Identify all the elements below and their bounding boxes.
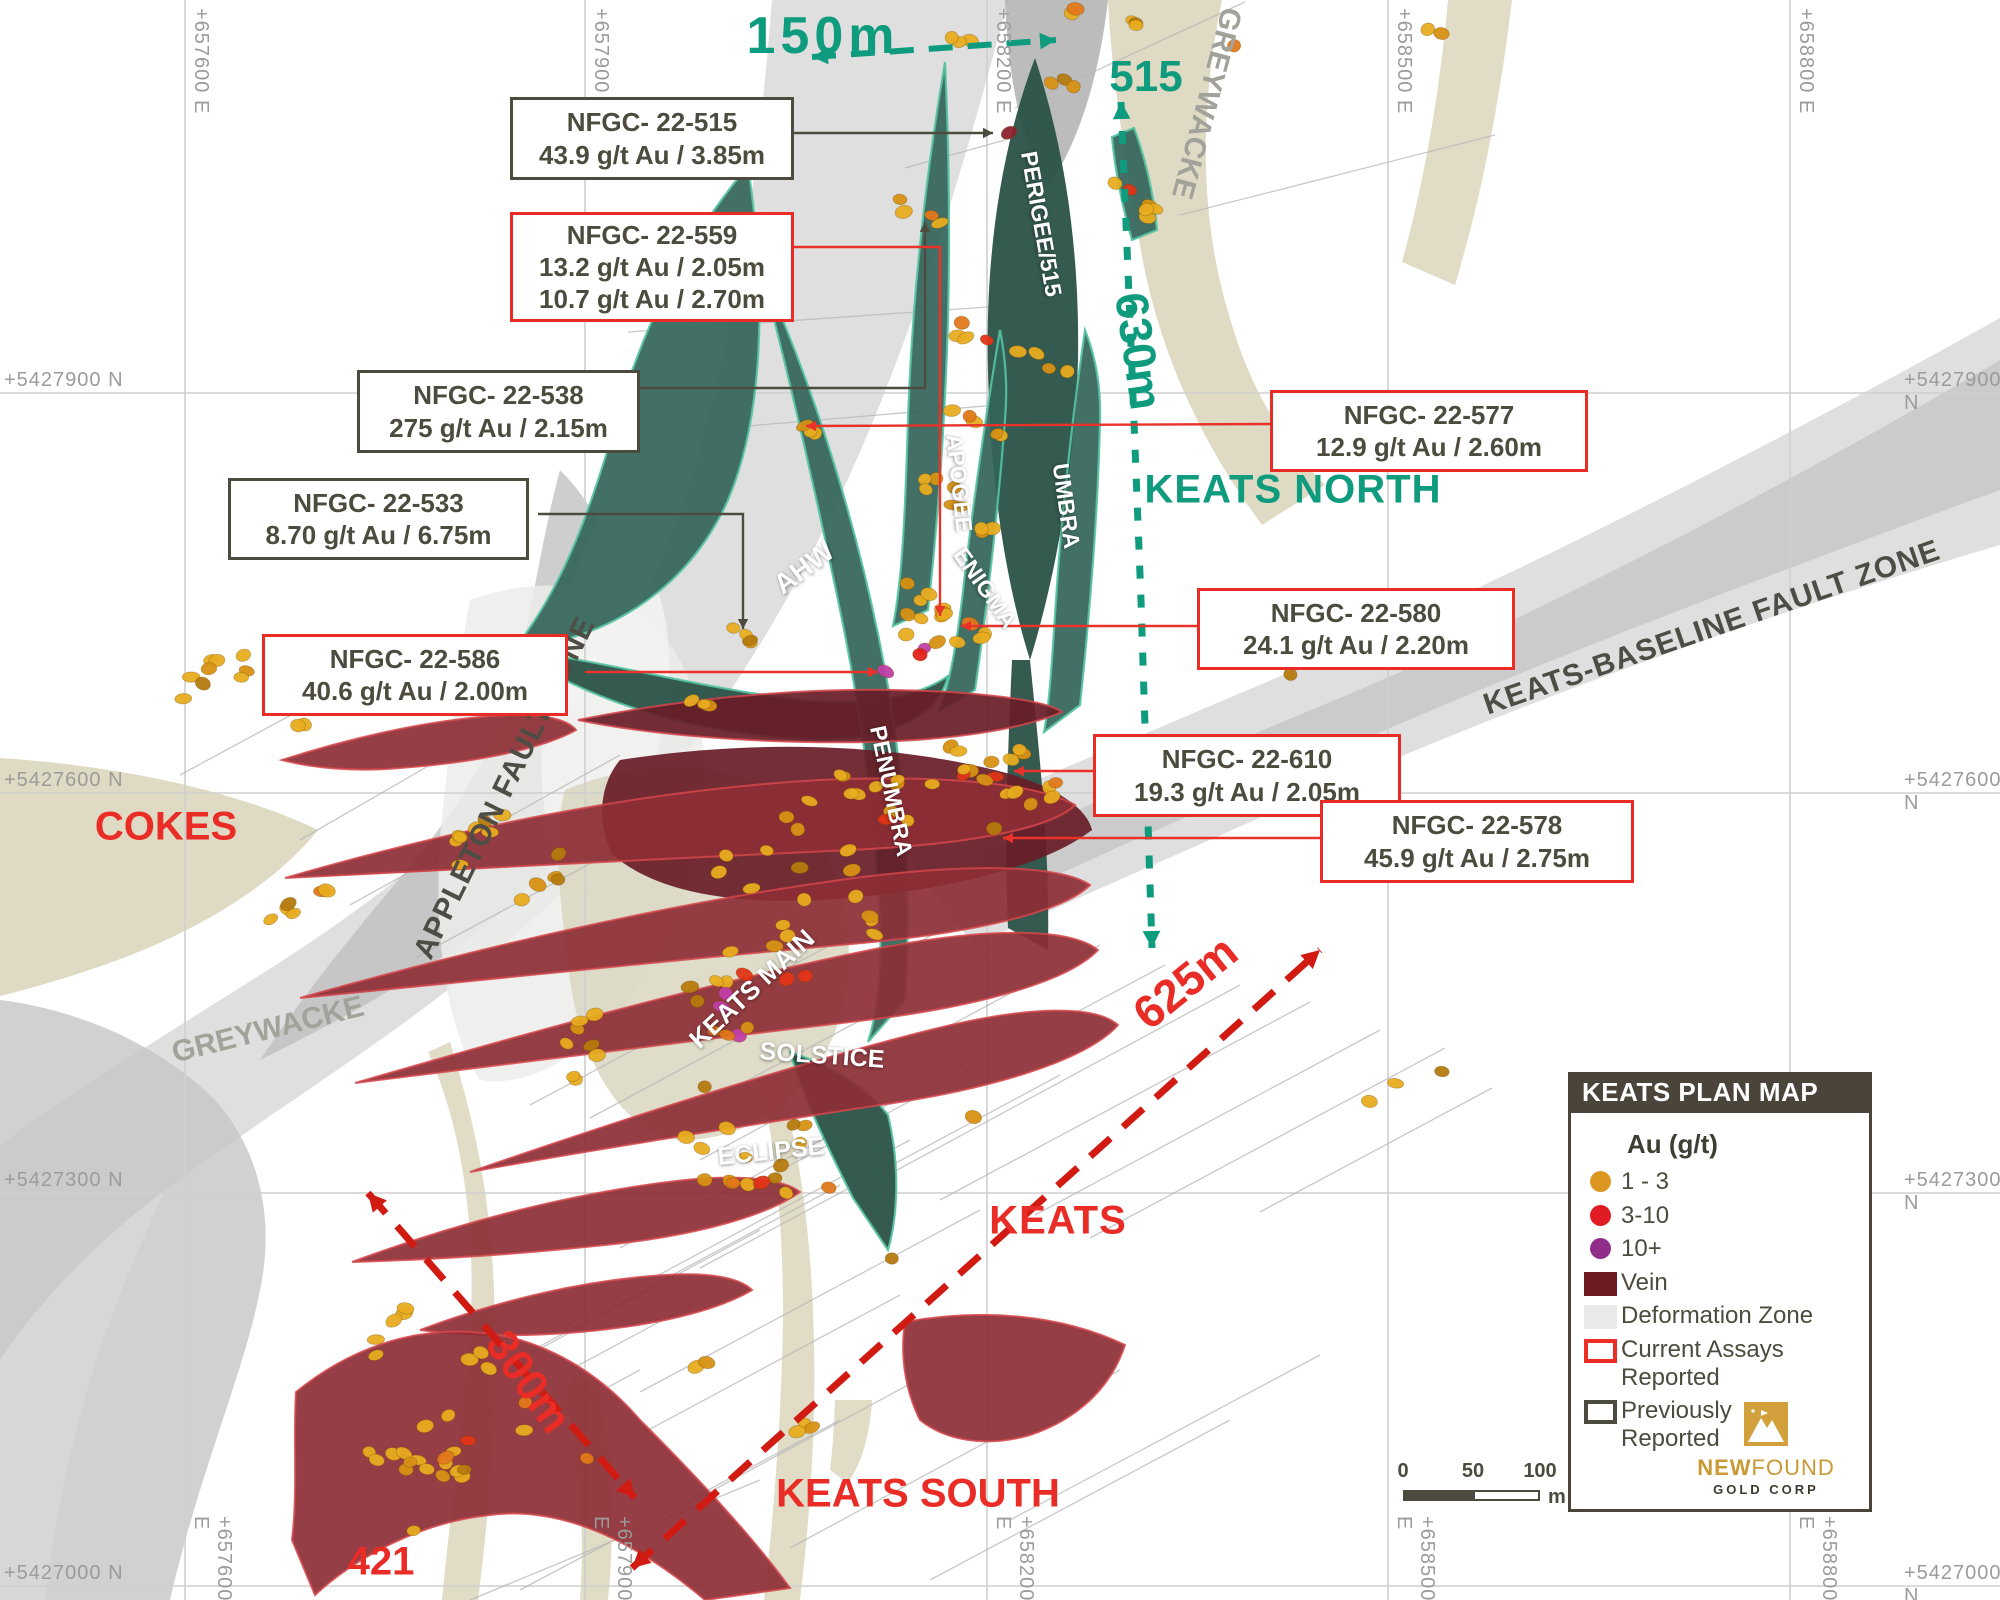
legend-swatch-dot <box>1590 1205 1611 1226</box>
assay-callout-nfgc-22-578: NFGC- 22-57845.9 g/t Au / 2.75m <box>1320 800 1634 883</box>
mountain-logo-icon <box>1744 1402 1788 1446</box>
callout-line: 13.2 g/t Au / 2.05m <box>513 251 791 283</box>
grid-label-north: +5427900 N <box>1904 369 2000 415</box>
legend-item: Deformation Zone <box>1579 1302 1869 1330</box>
legend-swatch <box>1579 1336 1621 1363</box>
callout-line: NFGC- 22-610 <box>1096 743 1398 775</box>
callout-line: 40.6 g/t Au / 2.00m <box>265 675 565 707</box>
legend: KEATS PLAN MAP Au (g/t) 1 - 33-1010+Vein… <box>1568 1072 1872 1512</box>
grid-label-east: +658800 E <box>1794 8 1817 114</box>
assay-callout-nfgc-22-580: NFGC- 22-58024.1 g/t Au / 2.20m <box>1197 588 1515 670</box>
legend-swatch <box>1579 1168 1621 1192</box>
callout-line: NFGC- 22-538 <box>360 379 637 411</box>
grid-label-east: +657600 E <box>189 8 212 114</box>
legend-item-label: 10+ <box>1621 1235 1662 1263</box>
grid-label-east: +658200 E <box>991 1516 1037 1600</box>
callout-line: 43.9 g/t Au / 3.85m <box>513 139 791 171</box>
callout-line: NFGC- 22-580 <box>1200 597 1512 629</box>
grid-label-east: +658200 E <box>991 8 1014 114</box>
grid-label-north: +5427300 N <box>4 1169 124 1192</box>
callout-line: NFGC- 22-578 <box>1323 809 1631 841</box>
legend-swatch <box>1579 1397 1621 1424</box>
legend-item-label: 3-10 <box>1621 1202 1669 1230</box>
legend-title: KEATS PLAN MAP <box>1568 1072 1872 1113</box>
grid-label-north: +5427900 N <box>4 369 124 392</box>
callout-line: NFGC- 22-586 <box>265 643 565 675</box>
grid-label-north: +5427000 N <box>4 1562 124 1585</box>
callout-line: 45.9 g/t Au / 2.75m <box>1323 842 1631 874</box>
legend-swatch <box>1579 1235 1621 1259</box>
callout-line: 24.1 g/t Au / 2.20m <box>1200 629 1512 661</box>
legend-au-header: Au (g/t) <box>1627 1129 1869 1160</box>
assay-callout-nfgc-22-515: NFGC- 22-51543.9 g/t Au / 3.85m <box>510 97 794 180</box>
keats-plan-map: NFGC- 22-51543.9 g/t Au / 3.85mNFGC- 22-… <box>0 0 2000 1600</box>
callout-line: NFGC- 22-533 <box>231 487 526 519</box>
scale-bar-filled-segment <box>1403 1490 1473 1501</box>
legend-item: Vein <box>1579 1269 1869 1297</box>
legend-body: Au (g/t) 1 - 33-1010+VeinDeformation Zon… <box>1568 1113 1872 1512</box>
legend-item: 10+ <box>1579 1235 1869 1263</box>
callout-line: NFGC- 22-577 <box>1273 399 1585 431</box>
scale-tick: 50 <box>1462 1460 1484 1483</box>
grid-label-north: +5427600 N <box>1904 769 2000 815</box>
legend-swatch-dot <box>1590 1171 1611 1192</box>
callout-line: NFGC- 22-559 <box>513 219 791 251</box>
legend-item: 3-10 <box>1579 1202 1869 1230</box>
scale-bar-open-segment <box>1473 1490 1540 1501</box>
legend-item: 1 - 3 <box>1579 1168 1869 1196</box>
legend-item-label: Current AssaysReported <box>1621 1336 1784 1391</box>
grid-label-north: +5427300 N <box>1904 1169 2000 1215</box>
grid-label-east: +658800 E <box>1794 1516 1840 1600</box>
grid-label-east: +657600 E <box>189 1516 235 1600</box>
logo-wordmark: NEWFOUND <box>1681 1455 1851 1481</box>
callout-line: 275 g/t Au / 2.15m <box>360 412 637 444</box>
legend-item-label: 1 - 3 <box>1621 1168 1669 1196</box>
grid-label-north: +5427600 N <box>4 769 124 792</box>
scale-bar: m 050100 <box>1396 1458 1576 1508</box>
assay-callout-nfgc-22-586: NFGC- 22-58640.6 g/t Au / 2.00m <box>262 634 568 716</box>
legend-swatch-rect <box>1584 1272 1617 1296</box>
legend-swatch-outline <box>1584 1400 1617 1424</box>
legend-swatch-dot <box>1590 1238 1611 1259</box>
callout-line: 8.70 g/t Au / 6.75m <box>231 519 526 551</box>
grid-label-east: +658500 E <box>1392 8 1415 114</box>
legend-swatch-outline <box>1584 1339 1617 1363</box>
grid-label-east: +658500 E <box>1392 1516 1438 1600</box>
newfound-gold-logo: NEWFOUND GOLD CORP <box>1681 1402 1851 1497</box>
legend-item-label: Vein <box>1621 1269 1668 1297</box>
legend-swatch <box>1579 1269 1621 1296</box>
scale-tick: 100 <box>1523 1460 1556 1483</box>
grid-label-east: +657900 E <box>589 1516 635 1600</box>
scale-bar-unit: m <box>1548 1486 1566 1509</box>
scale-bar-graphic <box>1403 1490 1540 1501</box>
assay-callout-nfgc-22-559: NFGC- 22-55913.2 g/t Au / 2.05m10.7 g/t … <box>510 212 794 322</box>
assay-callout-nfgc-22-533: NFGC- 22-5338.70 g/t Au / 6.75m <box>228 478 529 560</box>
assay-callout-nfgc-22-577: NFGC- 22-57712.9 g/t Au / 2.60m <box>1270 390 1588 472</box>
callout-line: 10.7 g/t Au / 2.70m <box>513 283 791 315</box>
legend-swatch-rect <box>1584 1305 1617 1329</box>
legend-item: Current AssaysReported <box>1579 1336 1869 1391</box>
scale-tick: 0 <box>1397 1460 1408 1483</box>
callout-line: 12.9 g/t Au / 2.60m <box>1273 431 1585 463</box>
legend-item-label: Deformation Zone <box>1621 1302 1813 1330</box>
callout-line: NFGC- 22-515 <box>513 106 791 138</box>
logo-subtitle: GOLD CORP <box>1681 1482 1851 1497</box>
assay-callout-nfgc-22-538: NFGC- 22-538275 g/t Au / 2.15m <box>357 370 640 453</box>
legend-swatch <box>1579 1202 1621 1226</box>
legend-swatch <box>1579 1302 1621 1329</box>
grid-label-north: +5427000 N <box>1904 1562 2000 1600</box>
